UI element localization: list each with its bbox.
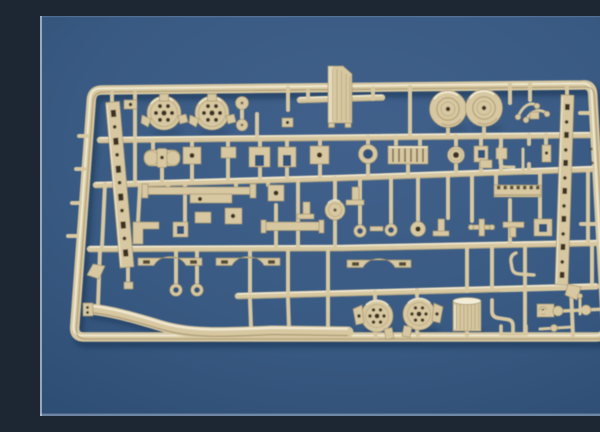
- axle-housing-part: [144, 149, 180, 168]
- sprue-photo: [40, 16, 600, 416]
- toothed-rack-part: [494, 185, 541, 197]
- center-disc-part: [325, 200, 345, 220]
- round-cap-part: [448, 147, 465, 164]
- superstructure-part: [328, 66, 352, 128]
- tube-ring-part: [359, 145, 378, 164]
- radiator-part: [388, 146, 428, 164]
- ribbed-drum-part: [453, 298, 481, 332]
- sprue-photo-svg: [40, 16, 600, 416]
